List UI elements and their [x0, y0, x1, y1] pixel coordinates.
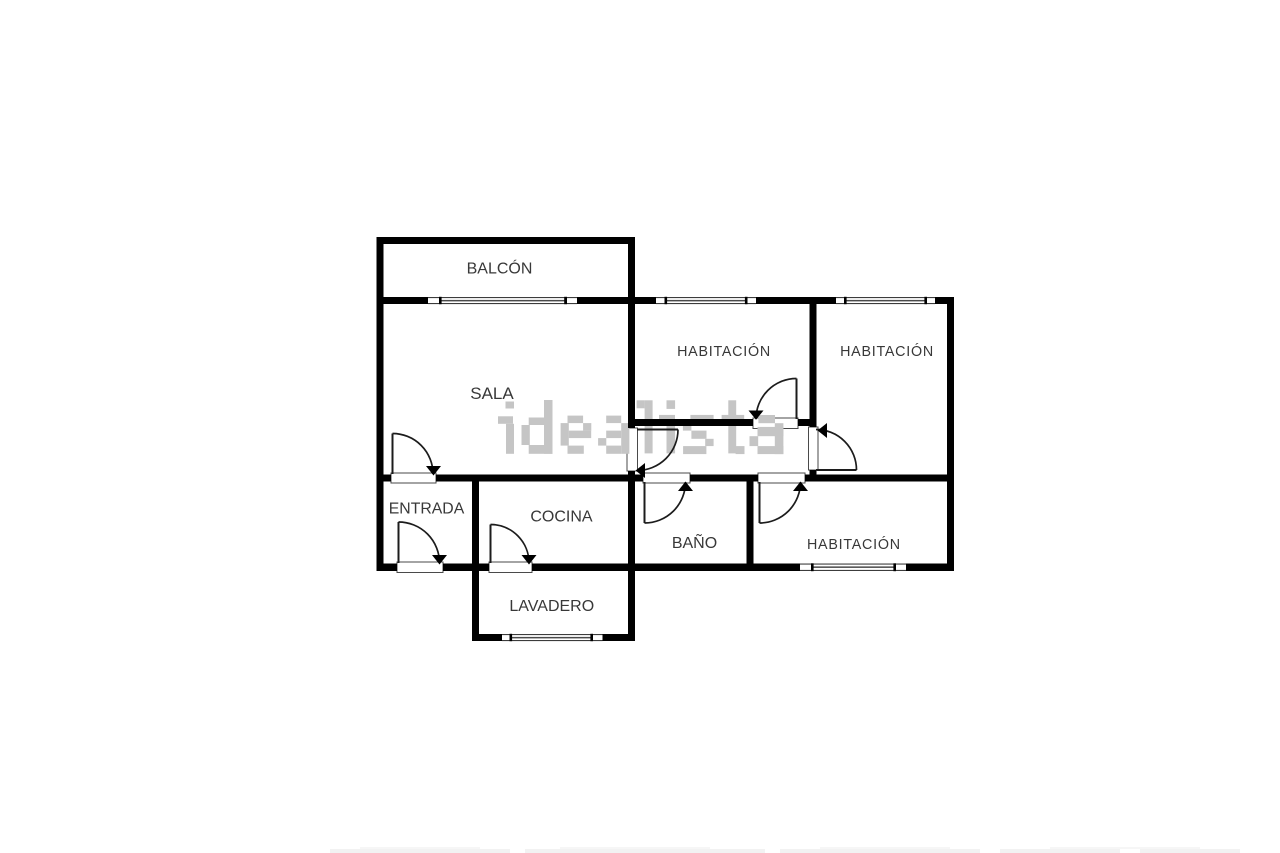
svg-text:COCINA: COCINA: [530, 509, 593, 526]
svg-text:LAVADERO: LAVADERO: [509, 598, 594, 615]
svg-text:HABITACIÓN: HABITACIÓN: [807, 536, 901, 553]
svg-text:BALCÓN: BALCÓN: [467, 259, 533, 278]
svg-text:HABITACIÓN: HABITACIÓN: [840, 343, 934, 360]
svg-text:SALA: SALA: [470, 384, 514, 403]
svg-text:BAÑO: BAÑO: [672, 532, 717, 552]
svg-text:HABITACIÓN: HABITACIÓN: [677, 343, 771, 360]
svg-text:ENTRADA: ENTRADA: [389, 500, 465, 517]
